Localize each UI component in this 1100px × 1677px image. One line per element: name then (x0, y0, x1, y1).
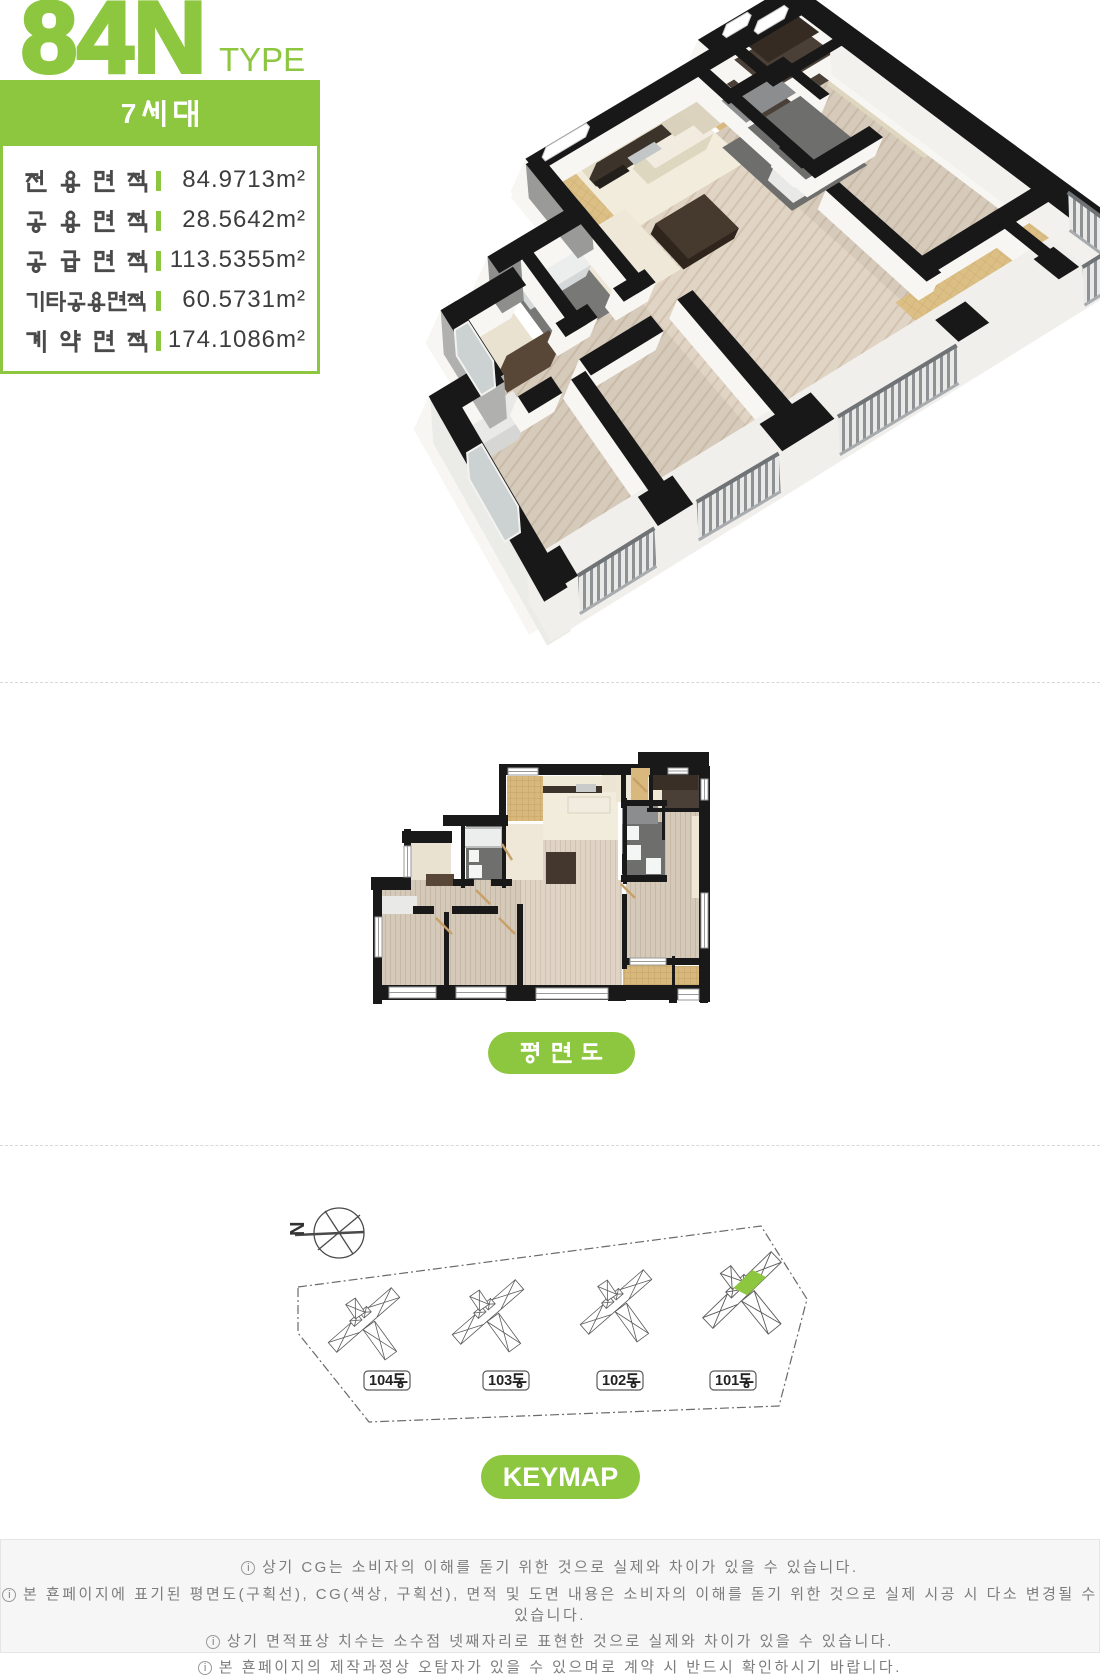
svg-text:N: N (287, 1222, 309, 1236)
svg-text:101: 101 (715, 1373, 739, 1389)
svg-text:103: 103 (488, 1373, 512, 1389)
svg-text:102: 102 (602, 1373, 626, 1389)
svg-text:104: 104 (369, 1373, 393, 1389)
